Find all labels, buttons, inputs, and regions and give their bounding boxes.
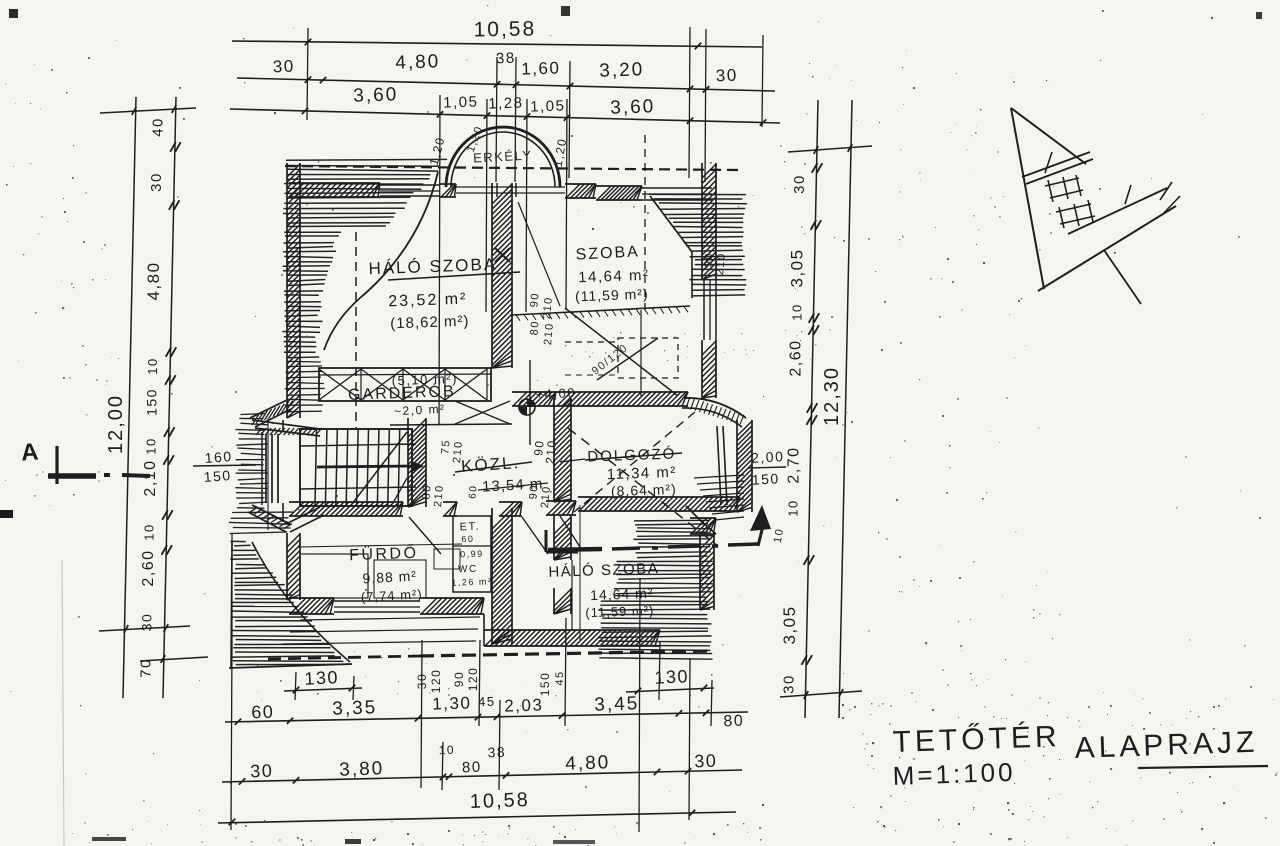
svg-text:10: 10 [145,357,160,374]
svg-text:30: 30 [716,66,739,86]
svg-text:80: 80 [723,713,744,731]
svg-text:40: 40 [149,117,166,137]
svg-text:90: 90 [452,671,466,687]
svg-text:4,80: 4,80 [565,752,611,775]
svg-text:30: 30 [781,674,798,694]
svg-text:120: 120 [429,669,443,694]
svg-text:~2,0 m²: ~2,0 m² [394,402,446,419]
svg-text:0,99: 0,99 [460,549,484,560]
svg-text:4,80: 4,80 [144,261,163,300]
svg-text:+4,00: +4,00 [535,385,576,402]
svg-text:3,60: 3,60 [353,84,399,107]
svg-text:30: 30 [791,174,808,194]
svg-text:30: 30 [250,761,274,782]
svg-text:60: 60 [461,534,474,544]
svg-text:210: 210 [451,440,465,464]
svg-text:80: 80 [528,320,541,336]
svg-text:ET.: ET. [459,521,480,534]
svg-text:1,30: 1,30 [432,693,472,713]
svg-text:210: 210 [432,484,446,508]
svg-text:12,30: 12,30 [821,366,843,426]
svg-text:1,60: 1,60 [521,58,561,78]
svg-text:14,64 m²: 14,64 m² [590,585,654,603]
svg-text:DOLGOZÓ: DOLGOZÓ [587,445,677,465]
svg-text:30: 30 [273,57,296,77]
svg-text:(11,59 m²): (11,59 m²) [575,286,649,305]
svg-text:3,45: 3,45 [594,693,640,716]
svg-text:60: 60 [467,484,479,499]
svg-text:3,05: 3,05 [787,248,806,287]
svg-text:160: 160 [204,448,233,466]
svg-text:210: 210 [543,439,559,465]
svg-text:12,00: 12,00 [105,394,127,454]
svg-text:150: 150 [538,672,552,697]
svg-text:90: 90 [527,484,540,500]
svg-text:14,64 m²: 14,64 m² [578,267,650,286]
svg-text:2,00: 2,00 [751,448,785,466]
svg-text:2,70: 2,70 [785,446,802,483]
svg-text:2,60: 2,60 [140,549,157,586]
svg-text:80: 80 [462,759,482,777]
svg-text:TETŐTÉR: TETŐTÉR [892,720,1061,759]
svg-text:45: 45 [478,694,496,710]
svg-text:M=1:100: M=1:100 [892,757,1016,791]
svg-text:1,05: 1,05 [530,97,566,115]
svg-text:10: 10 [785,499,800,516]
svg-text:4,80: 4,80 [395,51,441,74]
svg-text:210: 210 [539,485,553,509]
svg-text:3,05: 3,05 [780,605,799,644]
svg-text:210: 210 [542,322,556,346]
svg-text:2,10: 2,10 [142,459,159,496]
svg-text:38: 38 [496,50,516,68]
svg-text:1,28: 1,28 [488,94,524,112]
svg-text:90: 90 [702,252,715,268]
svg-text:10: 10 [438,743,455,758]
svg-text:A: A [20,438,41,466]
svg-text:60: 60 [251,702,275,723]
svg-text:10: 10 [142,523,157,540]
svg-text:210: 210 [541,296,555,320]
svg-text:150: 150 [751,470,780,487]
svg-text:150: 150 [203,467,232,485]
svg-text:(8,64 m²): (8,64 m²) [611,481,677,499]
svg-text:75: 75 [439,439,452,455]
svg-text:SZOBA: SZOBA [575,243,640,263]
svg-text:1,26 m²: 1,26 m² [451,576,492,587]
svg-text:3,35: 3,35 [332,697,378,720]
svg-text:70: 70 [138,658,155,678]
svg-text:120: 120 [466,667,480,692]
svg-text:38: 38 [487,744,506,761]
svg-text:2,03: 2,03 [504,695,544,715]
svg-text:130: 130 [304,667,340,689]
svg-text:10: 10 [790,303,805,320]
svg-text:10,58: 10,58 [473,17,536,41]
svg-text:10: 10 [143,437,158,454]
svg-text:WC: WC [458,564,478,576]
svg-text:9,88 m²: 9,88 m² [362,568,417,587]
svg-text:210: 210 [714,252,728,276]
svg-text:(11,59 m²): (11,59 m²) [585,603,654,620]
svg-text:2,60: 2,60 [788,339,805,376]
svg-text:90: 90 [528,292,541,308]
svg-text:(18,62 m²): (18,62 m²) [390,313,470,333]
svg-text:30: 30 [139,613,155,632]
svg-text:80: 80 [420,484,433,500]
svg-text:3,80: 3,80 [339,758,385,781]
svg-text:ALAPRAJZ: ALAPRAJZ [1074,726,1259,765]
svg-text:45: 45 [554,670,566,685]
svg-text:10,58: 10,58 [469,789,530,813]
svg-text:30: 30 [694,751,718,772]
svg-text:3,20: 3,20 [599,59,645,82]
svg-text:23,52 m²: 23,52 m² [388,291,468,311]
svg-text:150: 150 [143,388,159,416]
svg-text:ERKÉLY: ERKÉLY [473,147,533,165]
svg-text:3,60: 3,60 [610,96,656,119]
svg-text:1,05: 1,05 [443,93,479,111]
svg-text:30: 30 [148,172,165,192]
